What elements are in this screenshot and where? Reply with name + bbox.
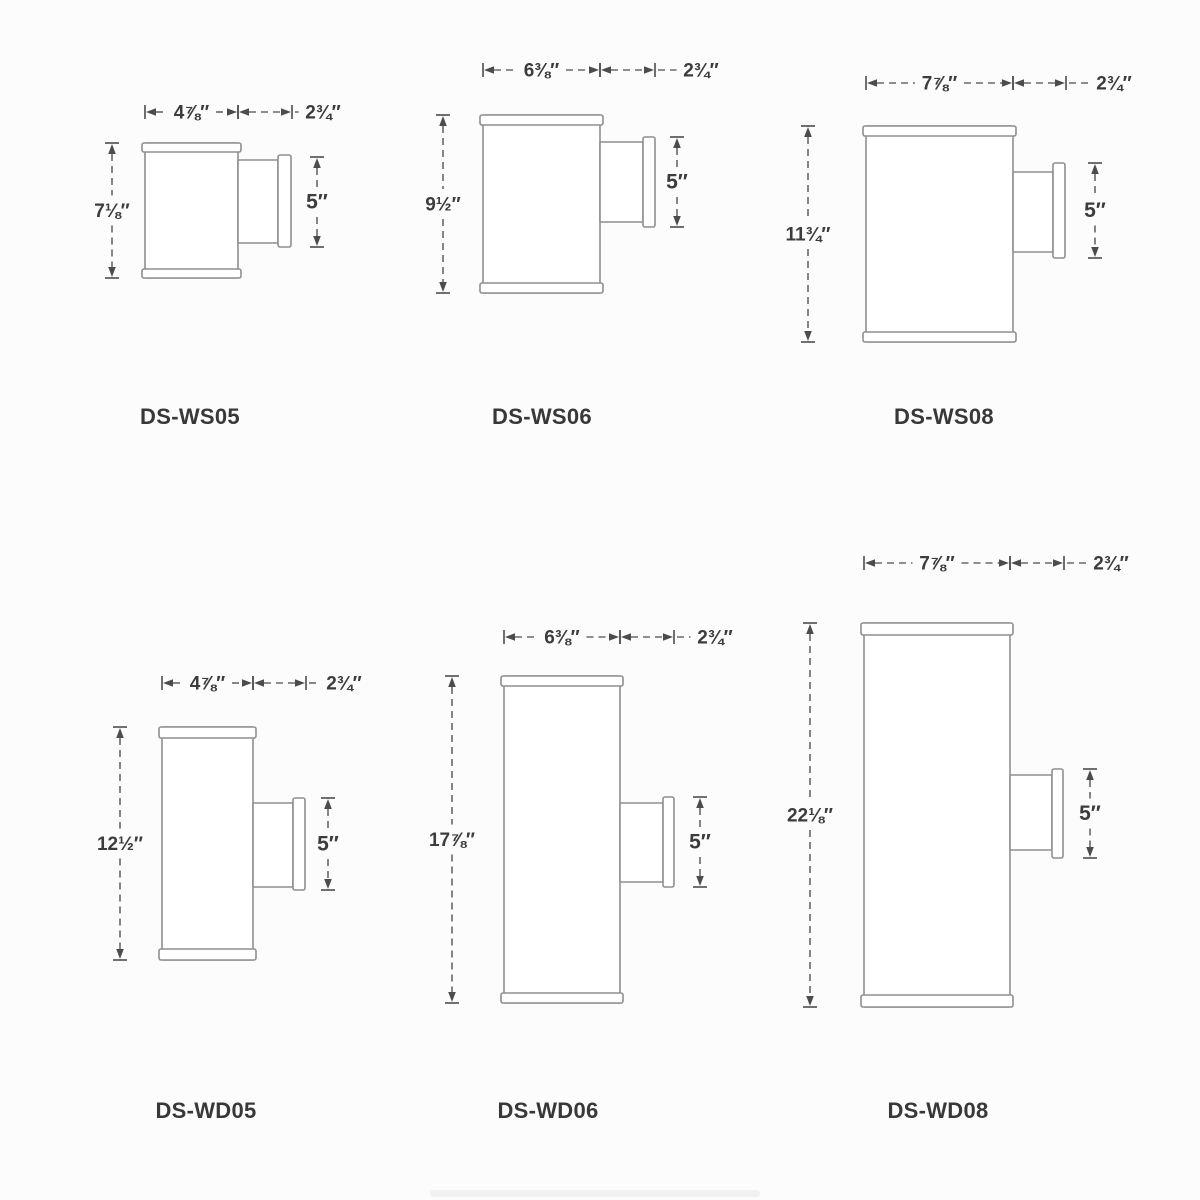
- fixture-body: [162, 727, 253, 960]
- drawing-canvas: 4⅞″2¾″7⅛″5″DS-WS056⅜″2¾″9½″5″DS-WS067⅞″2…: [0, 0, 1200, 1200]
- height-dimension: 12½″: [97, 727, 143, 960]
- dimension-label: 2¾″: [326, 674, 362, 695]
- wall-plate: [1052, 769, 1063, 858]
- bottom-artifact: [430, 1190, 760, 1197]
- wall-plate: [293, 798, 305, 890]
- wall-plate: [1053, 163, 1065, 258]
- fixture-body: [483, 115, 600, 293]
- fixture-DS-WS05: 4⅞″2¾″7⅛″5″DS-WS05: [94, 103, 341, 430]
- fixture-body: [864, 623, 1010, 1007]
- dimension-label: 5″: [689, 831, 711, 854]
- fixture-bottom-cap: [501, 993, 623, 1003]
- fixture-bottom-cap: [861, 995, 1013, 1007]
- fixture-top-cap: [861, 623, 1013, 635]
- fixture-top-cap: [863, 126, 1016, 136]
- dimension-label: 5″: [306, 191, 328, 214]
- mount-arm: [238, 160, 278, 243]
- width-dimension: 7⅞″: [864, 554, 1010, 575]
- mount-arm: [253, 803, 293, 887]
- width-dimension: 4⅞″: [162, 674, 253, 695]
- fixture-bottom-cap: [480, 283, 603, 293]
- backplate-dimension: 5″: [666, 137, 688, 227]
- width-dimension: 6⅜″: [483, 61, 600, 82]
- dimension-label: 5″: [317, 833, 339, 856]
- model-label: DS-WS06: [492, 404, 592, 429]
- mount-arm: [1013, 172, 1053, 252]
- width-dimension: 7⅞″: [866, 74, 1013, 95]
- backplate-dimension: 5″: [689, 797, 711, 887]
- backplate-dimension: 5″: [317, 798, 339, 890]
- model-label: DS-WD08: [887, 1098, 988, 1123]
- dimension-label: 4⅞″: [174, 103, 210, 124]
- dimension-label: 2¾″: [697, 628, 733, 649]
- fixture-DS-WS06: 6⅜″2¾″9½″5″DS-WS06: [425, 61, 719, 430]
- dimension-label: 12½″: [97, 834, 143, 855]
- fixture-top-cap: [142, 143, 241, 152]
- fixture-top-cap: [501, 676, 623, 686]
- wall-plate: [663, 797, 674, 887]
- height-dimension: 17⅞″: [429, 676, 475, 1003]
- fixture-DS-WD05: 4⅞″2¾″12½″5″DS-WD05: [97, 674, 362, 1124]
- dimension-label: 9½″: [425, 195, 461, 216]
- mount-arm: [620, 803, 663, 882]
- depth-dimension: 2¾″: [253, 674, 362, 695]
- depth-dimension: 2¾″: [1013, 74, 1132, 95]
- dimension-label: 6⅜″: [544, 628, 580, 649]
- width-dimension: 6⅜″: [504, 628, 620, 649]
- dimension-label: 11¾″: [785, 225, 830, 246]
- dimension-label: 7⅞″: [922, 74, 958, 95]
- fixture-body: [866, 126, 1013, 342]
- backplate-dimension: 5″: [306, 157, 328, 247]
- fixture-DS-WD08: 7⅞″2¾″22⅛″5″DS-WD08: [787, 554, 1129, 1124]
- fixture-top-cap: [480, 115, 603, 125]
- dimension-label: 6⅜″: [524, 61, 560, 82]
- depth-dimension: 2¾″: [620, 628, 733, 649]
- mount-arm: [1010, 775, 1052, 850]
- model-label: DS-WD05: [155, 1098, 256, 1123]
- dimension-label: 7⅞″: [919, 554, 955, 575]
- mount-arm: [600, 142, 643, 222]
- fixture-top-cap: [159, 727, 256, 738]
- dimension-label: 22⅛″: [787, 806, 833, 827]
- wall-plate: [643, 137, 655, 227]
- dimension-label: 2¾″: [1093, 554, 1129, 575]
- width-dimension: 4⅞″: [145, 103, 238, 124]
- model-label: DS-WS08: [894, 404, 994, 429]
- model-label: DS-WD06: [497, 1098, 598, 1123]
- dimension-label: 5″: [1084, 199, 1106, 222]
- depth-dimension: 2¾″: [238, 103, 341, 124]
- depth-dimension: 2¾″: [600, 61, 719, 82]
- dimension-label: 17⅞″: [429, 830, 475, 851]
- backplate-dimension: 5″: [1084, 163, 1106, 258]
- depth-dimension: 2¾″: [1010, 554, 1129, 575]
- dimension-label: 5″: [666, 171, 688, 194]
- backplate-dimension: 5″: [1079, 769, 1101, 858]
- fixture-bottom-cap: [159, 949, 256, 960]
- height-dimension: 22⅛″: [787, 623, 833, 1007]
- dimension-label: 2¾″: [683, 61, 719, 82]
- fixture-bottom-cap: [142, 269, 241, 278]
- fixture-body: [145, 143, 238, 278]
- dimension-label: 4⅞″: [190, 674, 226, 695]
- wall-plate: [278, 155, 291, 247]
- fixture-bottom-cap: [863, 332, 1016, 342]
- fixture-DS-WD06: 6⅜″2¾″17⅞″5″DS-WD06: [429, 628, 733, 1124]
- spec-drawing: 4⅞″2¾″7⅛″5″DS-WS056⅜″2¾″9½″5″DS-WS067⅞″2…: [0, 0, 1200, 1200]
- dimension-label: 2¾″: [1096, 74, 1132, 95]
- height-dimension: 7⅛″: [94, 143, 130, 278]
- dimension-label: 7⅛″: [94, 201, 130, 222]
- height-dimension: 9½″: [425, 115, 461, 293]
- dimension-label: 5″: [1079, 802, 1101, 825]
- fixture-body: [504, 676, 620, 1003]
- fixture-DS-WS08: 7⅞″2¾″11¾″5″DS-WS08: [785, 74, 1131, 430]
- dimension-label: 2¾″: [305, 103, 341, 124]
- height-dimension: 11¾″: [785, 126, 830, 342]
- model-label: DS-WS05: [140, 404, 240, 429]
